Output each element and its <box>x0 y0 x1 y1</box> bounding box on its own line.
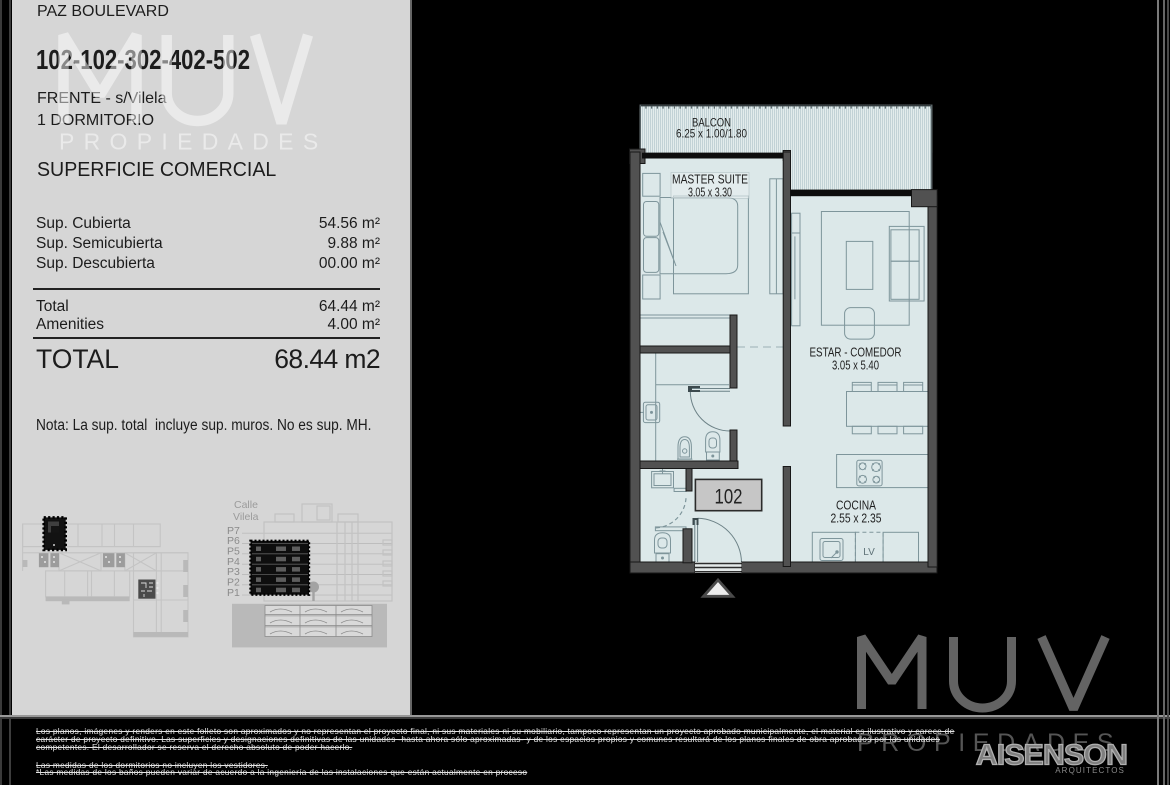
svg-text:6.25 x 1.00/1.80: 6.25 x 1.00/1.80 <box>676 127 747 141</box>
svg-text:P1: P1 <box>227 587 240 599</box>
svg-text:2.55 x 2.35: 2.55 x 2.35 <box>831 512 882 526</box>
svg-text:102: 102 <box>715 486 743 509</box>
svg-text:3.05 x 3.30: 3.05 x 3.30 <box>688 186 732 200</box>
svg-text:Vilela: Vilela <box>233 511 259 523</box>
svg-text:ESTAR - COMEDOR: ESTAR - COMEDOR <box>810 346 902 360</box>
svg-text:LV: LV <box>863 547 875 558</box>
svg-text:Calle: Calle <box>234 499 258 511</box>
svg-text:MASTER SUITE: MASTER SUITE <box>672 173 748 187</box>
svg-text:3.05 x 5.40: 3.05 x 5.40 <box>832 359 879 373</box>
svg-text:COCINA: COCINA <box>836 499 877 513</box>
